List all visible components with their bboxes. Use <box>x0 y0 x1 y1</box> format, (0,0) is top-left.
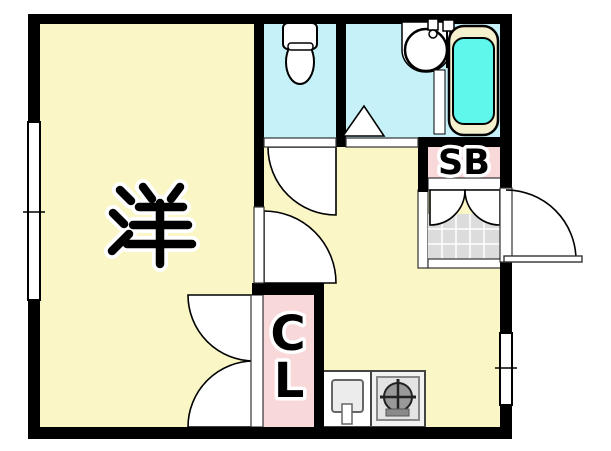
toilet-door-strip <box>264 138 336 147</box>
bathroom-door-strip <box>346 138 418 147</box>
main-room-label: 洋 <box>110 177 186 266</box>
entrance-door-arc <box>506 190 576 260</box>
floor-plan: 洋 SB C L <box>0 0 611 451</box>
faucet-block-left <box>428 19 438 30</box>
genkan-step-left <box>418 190 428 268</box>
shoe-box-label: SB <box>438 143 490 183</box>
bathtub-water <box>453 38 494 124</box>
wall-right-mid <box>500 260 512 335</box>
toilet-icon <box>283 23 317 84</box>
entrance-threshold <box>500 188 512 262</box>
entrance-door-panel <box>504 256 582 262</box>
kitchen-counter <box>323 371 425 427</box>
wall-left-upper <box>28 14 40 126</box>
closet-door-panel <box>251 295 263 427</box>
toilet-seat-line <box>288 43 313 50</box>
genkan-step-bottom <box>428 259 502 268</box>
faucet-knob <box>429 30 437 38</box>
wall-bottom <box>28 427 512 439</box>
closet-label-l: L <box>274 353 305 409</box>
wall-mainroom-divider <box>254 14 264 209</box>
basin-bowl <box>405 29 447 71</box>
bathtub-icon <box>449 26 498 135</box>
main-room-door-strip <box>254 207 264 283</box>
floor-plan-svg: 洋 SB C L <box>0 0 611 451</box>
wall-closet-right <box>314 283 324 427</box>
window-right <box>500 333 512 405</box>
wall-genkan-left <box>418 137 428 192</box>
main-room-kanji: 洋 <box>110 177 192 266</box>
wall-right-upper <box>500 14 512 190</box>
wall-toilet-bath-divider <box>336 14 346 147</box>
faucet-block-right <box>443 20 454 31</box>
basin-side-panel <box>434 70 445 134</box>
kitchen-faucet <box>342 404 352 424</box>
wall-left-lower <box>28 296 40 439</box>
window-left <box>28 122 40 300</box>
entrance-door-icon <box>504 190 582 262</box>
stove-grill-bar <box>386 409 409 416</box>
wall-right-lower <box>500 403 512 439</box>
wall-closet-top <box>252 283 324 295</box>
